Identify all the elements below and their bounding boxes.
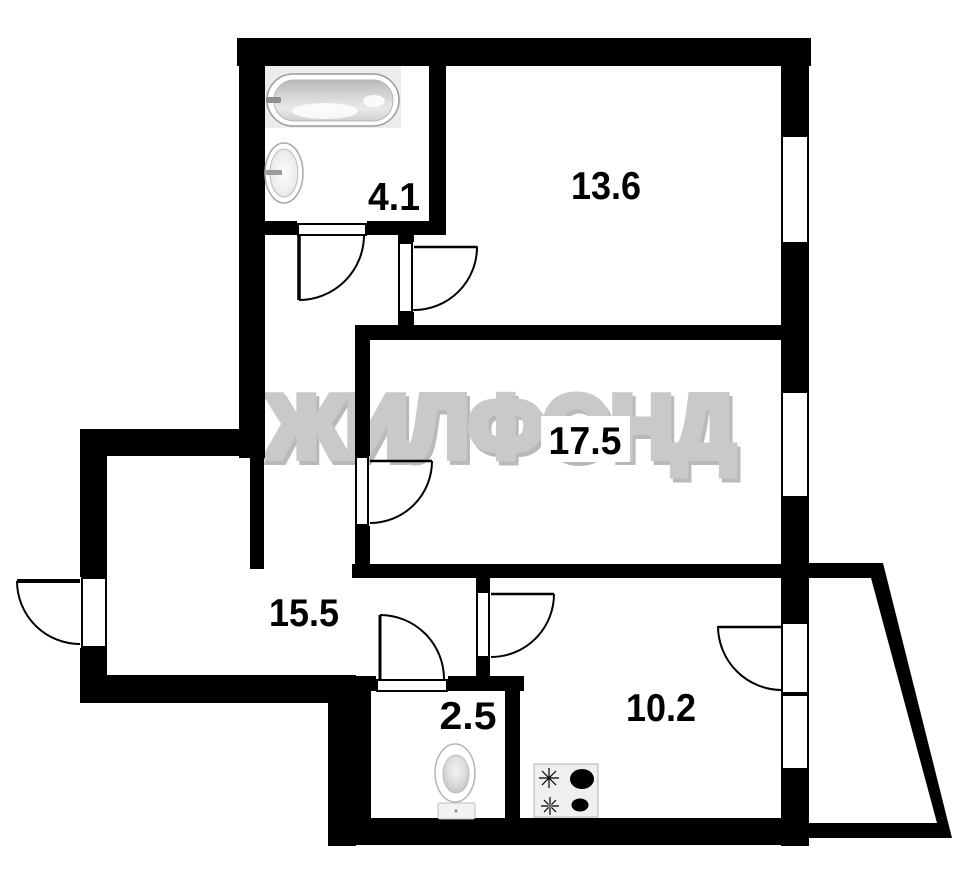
svg-text:ЖИЛФОНД: ЖИЛФОНД [266,377,735,476]
svg-text:17.5: 17.5 [549,420,622,463]
svg-text:4.1: 4.1 [368,176,420,219]
svg-text:2.5: 2.5 [440,695,497,738]
svg-text:13.6: 13.6 [571,165,641,208]
svg-text:10.2: 10.2 [626,687,696,730]
svg-text:15.5: 15.5 [269,592,339,635]
